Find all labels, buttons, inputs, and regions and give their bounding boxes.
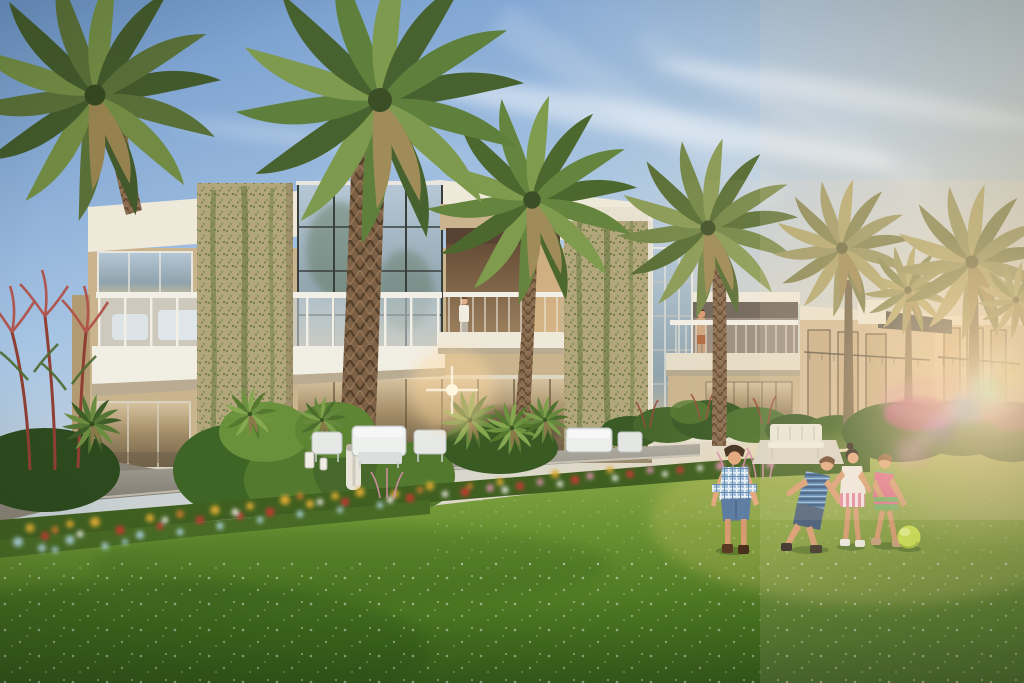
scene-canvas	[0, 0, 1024, 683]
vignette	[0, 0, 1024, 683]
rendered-photo: Photorealistic 3D rendering of a modern …	[0, 0, 1024, 683]
